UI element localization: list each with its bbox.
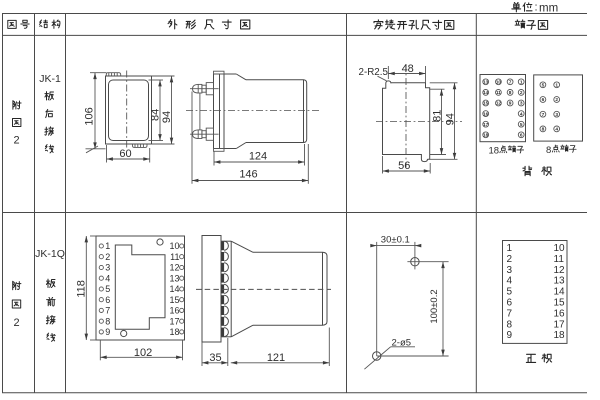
svg-text:6: 6: [542, 97, 545, 103]
svg-text:94: 94: [444, 113, 456, 125]
svg-text:3: 3: [555, 112, 558, 118]
svg-text:10: 10: [169, 241, 179, 251]
svg-text:4: 4: [520, 111, 523, 117]
svg-text:18: 18: [554, 330, 566, 341]
svg-text:14: 14: [169, 284, 179, 294]
svg-text:13: 13: [554, 276, 566, 287]
svg-text:16: 16: [169, 306, 179, 316]
svg-text:7: 7: [105, 306, 110, 316]
svg-text:15: 15: [554, 298, 566, 309]
svg-text:2: 2: [507, 254, 513, 265]
svg-text:8: 8: [509, 90, 512, 96]
svg-text:12: 12: [554, 265, 566, 276]
svg-text:30±0.1: 30±0.1: [381, 234, 410, 245]
svg-text:17: 17: [169, 316, 179, 326]
svg-text:118: 118: [75, 280, 87, 298]
svg-text:10: 10: [496, 79, 502, 84]
svg-text:3: 3: [105, 263, 110, 273]
svg-text:5: 5: [105, 284, 110, 294]
svg-text:81: 81: [431, 110, 443, 122]
svg-text:17: 17: [554, 319, 566, 330]
svg-text:2: 2: [520, 90, 523, 96]
svg-text:84: 84: [150, 109, 162, 121]
svg-text:4: 4: [507, 276, 513, 287]
svg-text:9: 9: [507, 330, 513, 341]
svg-text:13: 13: [483, 79, 489, 84]
svg-text:2: 2: [13, 317, 19, 329]
svg-text:mm: mm: [539, 3, 558, 15]
svg-text:JK-1Q: JK-1Q: [35, 248, 65, 260]
svg-text:35: 35: [209, 352, 221, 364]
svg-text::: :: [535, 2, 538, 14]
svg-text:JK-1: JK-1: [39, 73, 61, 85]
svg-text:60: 60: [119, 148, 131, 160]
svg-text:2-R2.5: 2-R2.5: [359, 67, 389, 78]
svg-text:2: 2: [14, 135, 20, 147]
svg-text:1: 1: [507, 243, 513, 254]
svg-text:17: 17: [483, 122, 489, 127]
svg-text:121: 121: [267, 352, 285, 364]
svg-text:1: 1: [105, 241, 110, 251]
svg-text:3: 3: [520, 101, 523, 107]
svg-text:2: 2: [555, 97, 558, 103]
svg-text:6: 6: [507, 298, 513, 309]
svg-text:11: 11: [554, 254, 565, 265]
svg-text:11: 11: [170, 252, 179, 262]
svg-text:5: 5: [520, 122, 523, 128]
svg-text:14: 14: [483, 90, 489, 95]
svg-text:12: 12: [496, 101, 502, 106]
svg-text:106: 106: [84, 107, 96, 125]
svg-text:94: 94: [161, 111, 173, 123]
svg-text:9: 9: [509, 101, 512, 107]
svg-text:8: 8: [542, 127, 545, 133]
svg-text:8: 8: [507, 319, 513, 330]
svg-text:18: 18: [483, 132, 489, 137]
svg-text:10: 10: [554, 243, 566, 254]
svg-text:13: 13: [169, 273, 179, 283]
svg-text:100±0.2: 100±0.2: [429, 289, 440, 323]
svg-text:7: 7: [509, 79, 512, 85]
svg-text:9: 9: [105, 327, 110, 337]
svg-text:6: 6: [105, 295, 110, 305]
svg-text:146: 146: [239, 168, 257, 180]
svg-text:11: 11: [496, 90, 501, 95]
svg-text:14: 14: [554, 287, 566, 298]
svg-text:3: 3: [507, 265, 513, 276]
svg-text:16: 16: [483, 111, 489, 116]
svg-text:5: 5: [542, 82, 545, 88]
svg-text:18: 18: [169, 327, 179, 337]
svg-text:4: 4: [105, 273, 110, 283]
svg-text:102: 102: [134, 347, 152, 359]
svg-text:5: 5: [507, 287, 513, 298]
svg-text:4: 4: [555, 127, 558, 133]
svg-text:6: 6: [520, 132, 523, 138]
svg-text:1: 1: [555, 82, 558, 88]
svg-text:2: 2: [105, 252, 110, 262]
svg-text:15: 15: [483, 101, 489, 106]
svg-text:56: 56: [398, 160, 410, 172]
svg-text:8: 8: [546, 145, 551, 156]
svg-text:16: 16: [554, 308, 566, 319]
svg-text:18: 18: [489, 146, 500, 157]
svg-text:8: 8: [105, 316, 110, 326]
svg-text:7: 7: [507, 308, 513, 319]
svg-text:7: 7: [542, 112, 545, 118]
svg-text:15: 15: [169, 295, 179, 305]
svg-text:124: 124: [249, 151, 267, 163]
svg-text:48: 48: [402, 63, 414, 75]
svg-text:1: 1: [520, 79, 523, 85]
svg-text:12: 12: [169, 263, 179, 273]
